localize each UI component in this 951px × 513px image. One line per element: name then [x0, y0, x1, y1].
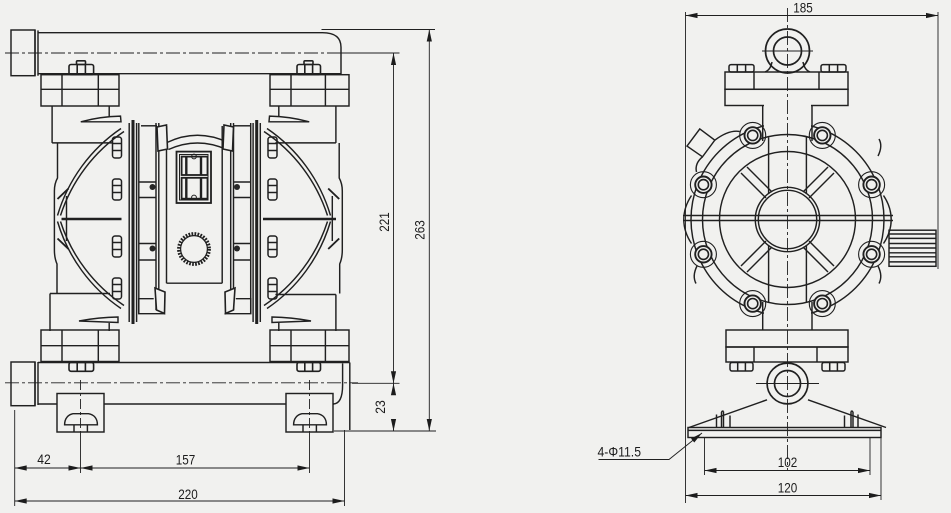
svg-text:102: 102	[778, 454, 798, 470]
svg-text:120: 120	[778, 480, 798, 496]
svg-text:23: 23	[372, 400, 388, 414]
svg-text:220: 220	[178, 486, 198, 502]
svg-text:42: 42	[37, 451, 51, 467]
svg-text:157: 157	[176, 452, 196, 468]
svg-text:4-Φ11.5: 4-Φ11.5	[598, 444, 642, 460]
svg-text:221: 221	[376, 212, 392, 232]
svg-text:263: 263	[412, 220, 428, 240]
svg-text:185: 185	[793, 0, 813, 16]
